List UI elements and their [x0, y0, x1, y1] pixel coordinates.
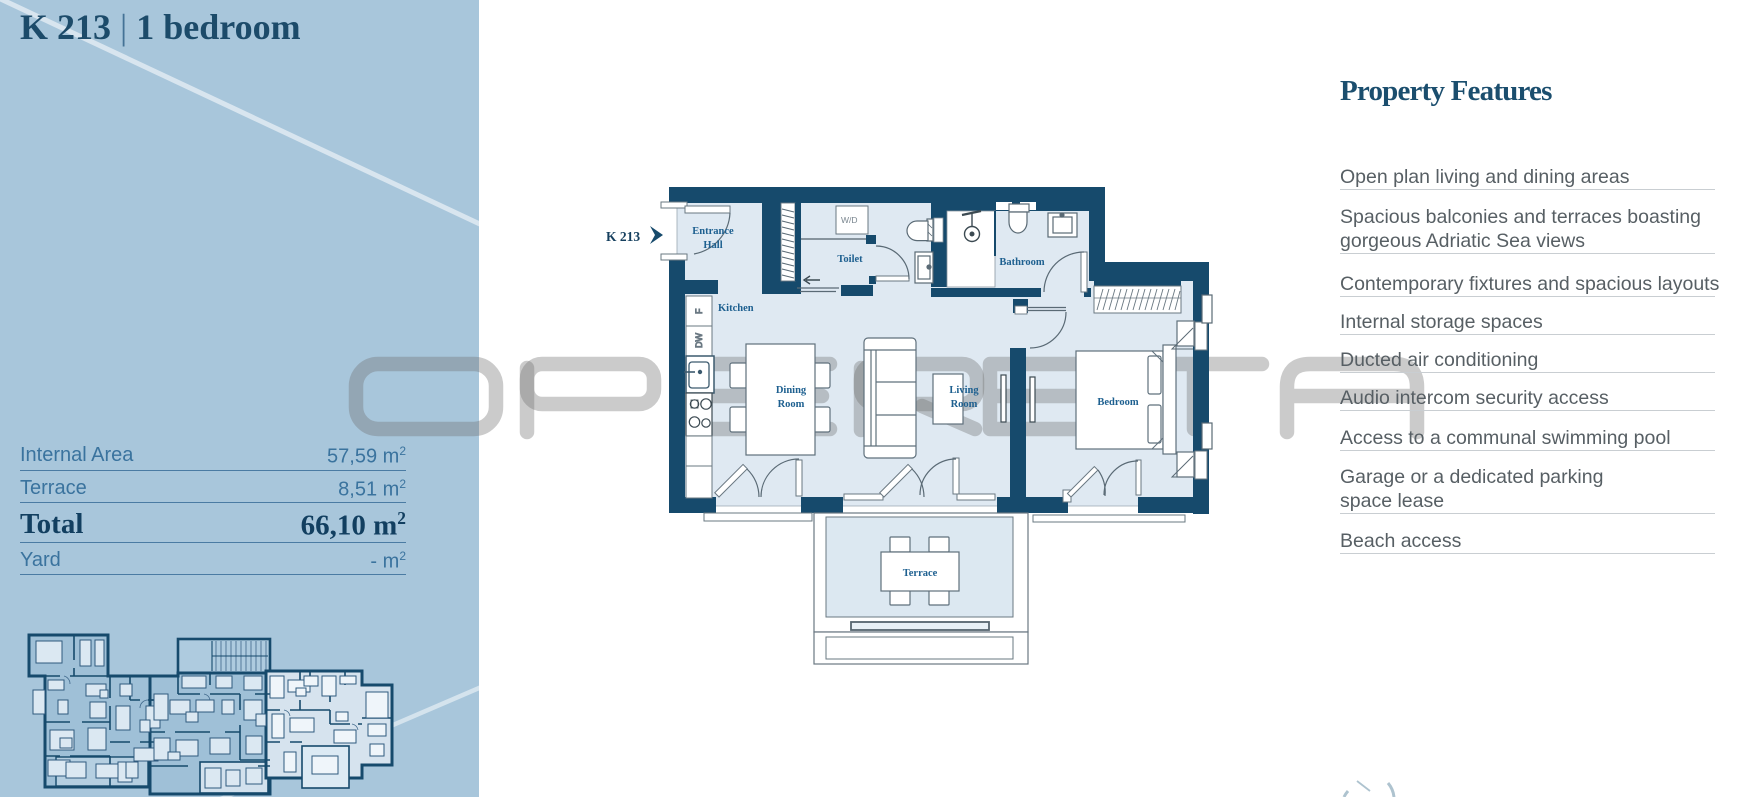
svg-text:Kitchen: Kitchen	[718, 303, 754, 314]
svg-text:DW: DW	[694, 333, 704, 348]
svg-text:Entrance: Entrance	[692, 226, 734, 237]
svg-text:W/D: W/D	[841, 215, 858, 225]
svg-text:Terrace: Terrace	[903, 568, 938, 579]
svg-text:K 213: K 213	[606, 229, 640, 244]
svg-text:Hall: Hall	[703, 240, 722, 251]
svg-text:Bathroom: Bathroom	[999, 257, 1045, 268]
svg-text:Dining: Dining	[776, 385, 807, 396]
svg-text:Room: Room	[778, 399, 805, 410]
svg-text:Bedroom: Bedroom	[1097, 397, 1138, 408]
svg-text:Living: Living	[949, 385, 979, 396]
svg-text:F: F	[694, 308, 704, 314]
svg-text:Room: Room	[951, 399, 978, 410]
svg-text:Toilet: Toilet	[837, 254, 863, 265]
